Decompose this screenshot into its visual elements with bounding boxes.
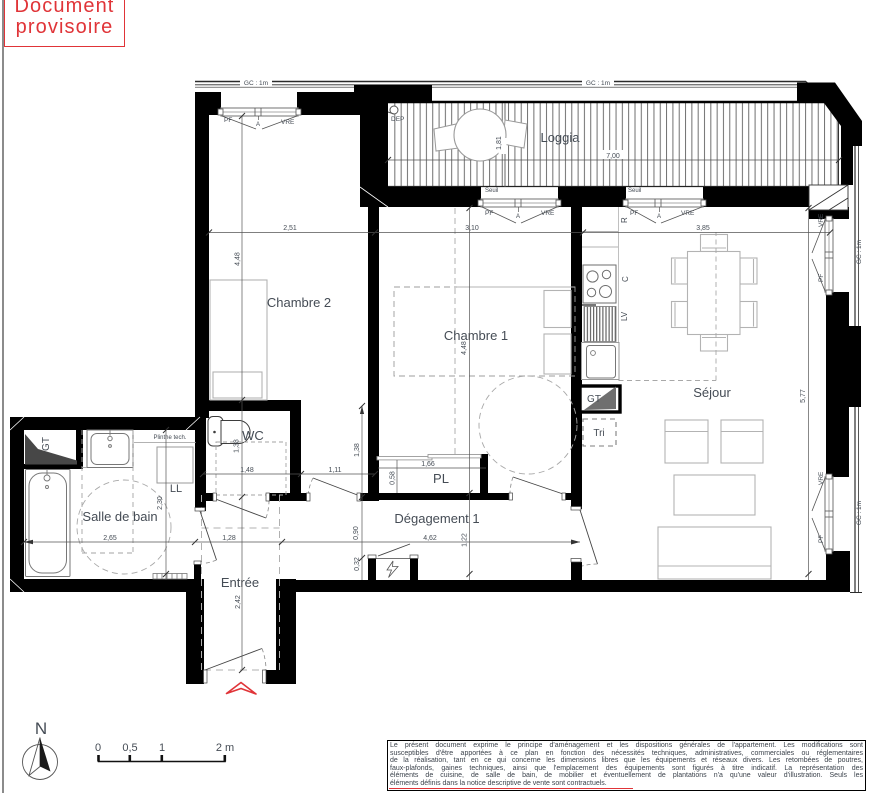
svg-text:2 m: 2 m [216, 742, 234, 754]
svg-text:1,38: 1,38 [234, 439, 241, 453]
svg-text:LL: LL [170, 483, 182, 495]
svg-text:PF: PF [485, 210, 493, 217]
svg-text:VRE: VRE [281, 119, 295, 126]
svg-text:5,77: 5,77 [800, 389, 807, 403]
svg-text:4,48: 4,48 [461, 341, 468, 355]
svg-text:2,51: 2,51 [283, 225, 297, 232]
svg-text:VRE: VRE [541, 210, 555, 217]
svg-text:WC: WC [242, 428, 264, 443]
svg-text:PF: PF [630, 210, 638, 217]
svg-text:PF: PF [818, 535, 825, 543]
svg-text:3,10: 3,10 [465, 225, 479, 232]
svg-text:3,85: 3,85 [696, 225, 710, 232]
svg-text:PF: PF [818, 274, 825, 282]
svg-text:1,81: 1,81 [496, 136, 503, 150]
svg-text:4,62: 4,62 [423, 535, 437, 542]
svg-text:PL: PL [433, 471, 449, 486]
svg-text:Séjour: Séjour [693, 385, 731, 400]
svg-text:Salle de bain: Salle de bain [82, 509, 157, 524]
svg-text:C: C [621, 276, 630, 282]
svg-text:1,28: 1,28 [222, 535, 236, 542]
svg-text:1,48: 1,48 [240, 467, 254, 474]
svg-text:Dégagement 1: Dégagement 1 [394, 511, 479, 526]
svg-text:0,5: 0,5 [122, 742, 137, 754]
svg-text:DEP: DEP [391, 116, 404, 123]
svg-text:GT: GT [587, 394, 601, 405]
svg-text:0: 0 [95, 742, 101, 754]
svg-text:A: A [256, 122, 260, 128]
svg-text:1: 1 [159, 742, 165, 754]
svg-text:Entrée: Entrée [221, 575, 259, 590]
svg-text:1,11: 1,11 [328, 467, 341, 474]
svg-text:GT: GT [41, 437, 52, 451]
svg-text:2,42: 2,42 [235, 595, 242, 609]
svg-text:Loggia: Loggia [540, 130, 580, 145]
svg-text:0,90: 0,90 [353, 526, 360, 540]
svg-text:1,22: 1,22 [462, 533, 469, 547]
svg-text:A: A [516, 214, 520, 220]
svg-text:PF: PF [224, 117, 232, 124]
svg-text:1,66: 1,66 [421, 461, 435, 468]
svg-text:2,65: 2,65 [103, 535, 117, 542]
svg-text:0,32: 0,32 [354, 557, 361, 571]
svg-text:Seuil: Seuil [628, 188, 641, 194]
svg-text:Plinthe tech.: Plinthe tech. [153, 435, 186, 441]
svg-text:LV: LV [620, 311, 629, 321]
svg-text:1,38: 1,38 [354, 443, 361, 457]
svg-text:GC : 1m: GC : 1m [856, 240, 863, 264]
svg-text:0,58: 0,58 [390, 471, 397, 485]
svg-text:Seuil: Seuil [485, 188, 498, 194]
svg-text:VRE: VRE [818, 471, 825, 485]
svg-text:GC : 1m: GC : 1m [244, 80, 268, 87]
svg-text:R: R [620, 217, 629, 223]
svg-text:A: A [657, 214, 661, 220]
svg-text:VRE: VRE [818, 213, 825, 227]
svg-text:Chambre 1: Chambre 1 [444, 328, 508, 343]
svg-text:4,48: 4,48 [235, 252, 242, 266]
svg-text:Chambre 2: Chambre 2 [267, 295, 331, 310]
svg-text:2,30: 2,30 [157, 496, 164, 510]
svg-text:7,00: 7,00 [606, 153, 620, 160]
svg-text:Tri: Tri [593, 428, 604, 439]
svg-text:GC : 1m: GC : 1m [586, 80, 610, 87]
svg-text:VRE: VRE [681, 210, 695, 217]
svg-text:GC : 1m: GC : 1m [856, 501, 863, 525]
svg-text:N: N [35, 719, 47, 738]
